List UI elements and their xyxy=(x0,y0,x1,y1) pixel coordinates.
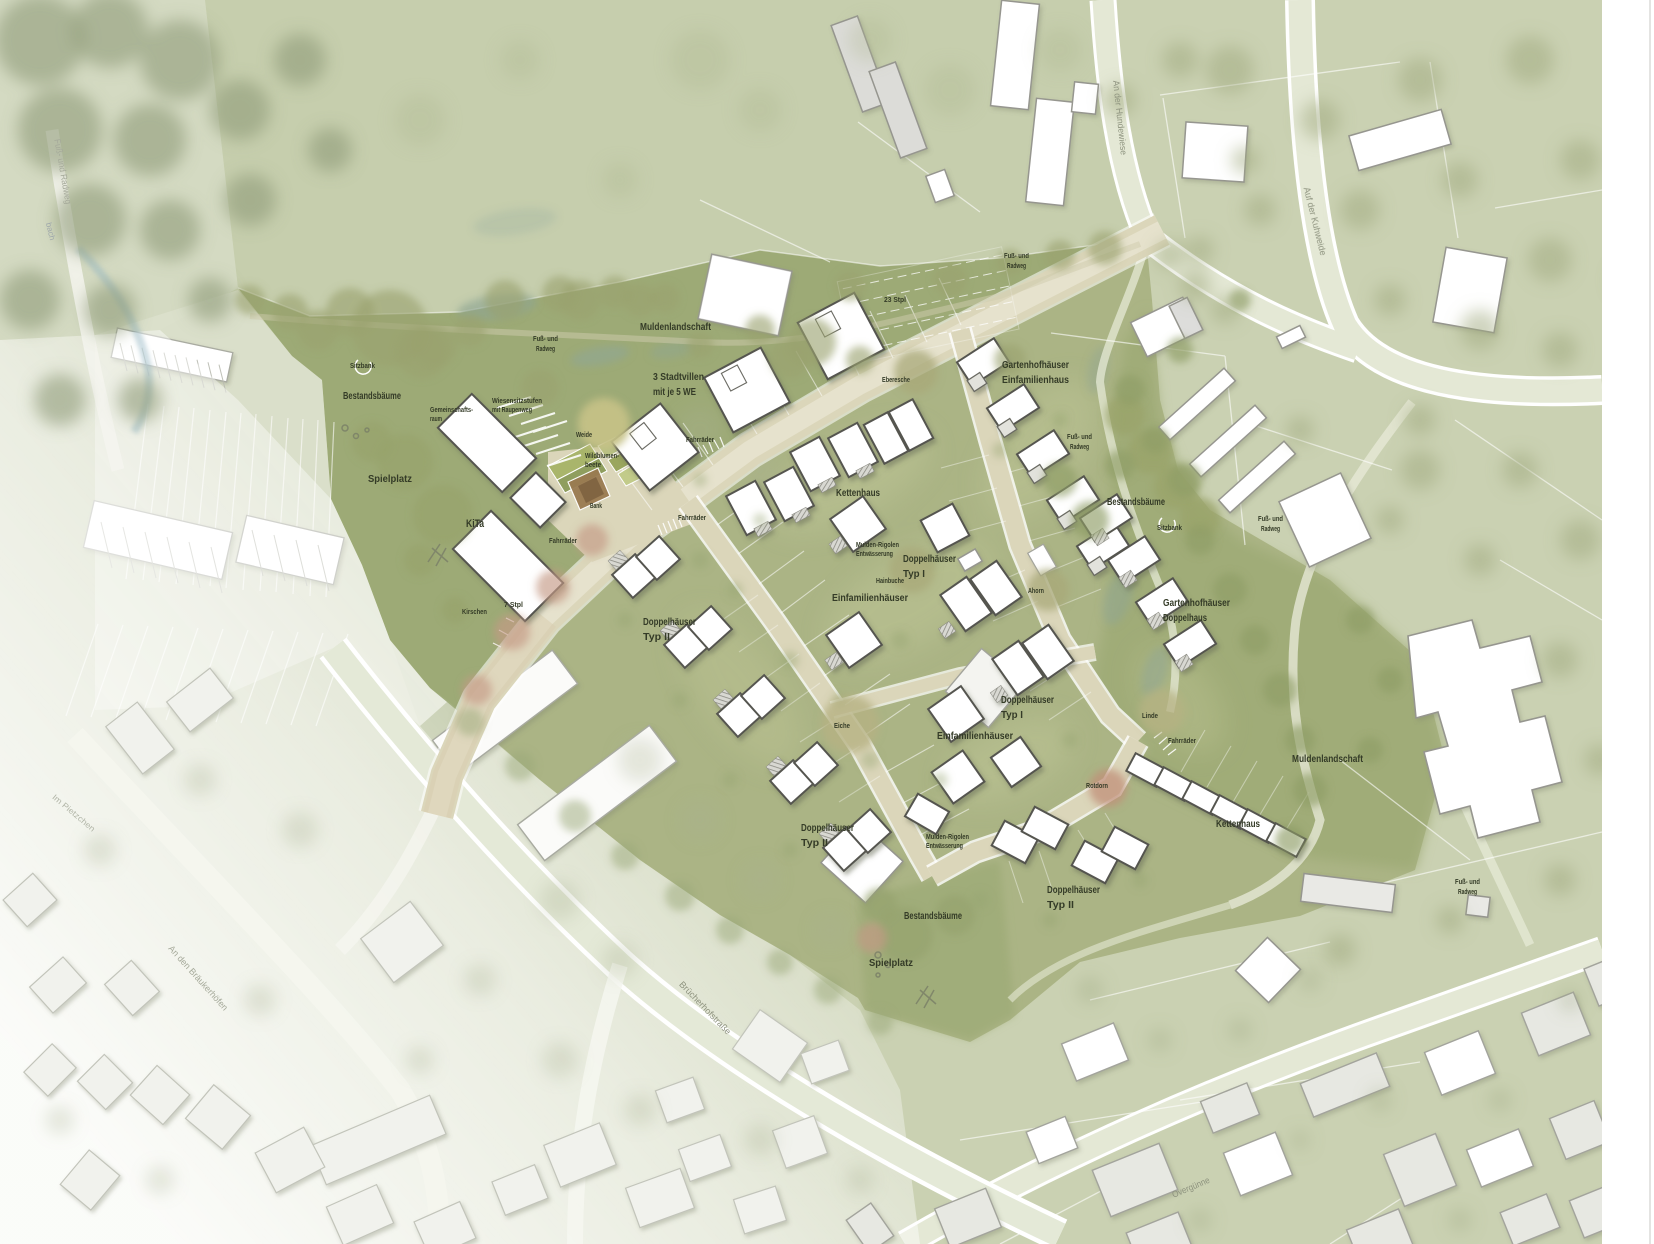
svg-text:Fahrräder: Fahrräder xyxy=(686,437,714,444)
svg-text:Einfamilienhaus: Einfamilienhaus xyxy=(1002,375,1069,386)
svg-text:Fuß- und: Fuß- und xyxy=(1258,516,1283,523)
svg-text:Radweg: Radweg xyxy=(1007,263,1026,270)
svg-text:Typ I: Typ I xyxy=(1001,710,1023,721)
svg-text:Gartenhofhäuser: Gartenhofhäuser xyxy=(1163,598,1230,609)
svg-text:Typ I: Typ I xyxy=(903,569,925,580)
svg-text:Fuß- und: Fuß- und xyxy=(533,336,558,343)
svg-text:Einfamilienhäuser: Einfamilienhäuser xyxy=(832,593,908,604)
svg-text:Rotdorn: Rotdorn xyxy=(1086,783,1108,790)
svg-text:Kettenhaus: Kettenhaus xyxy=(836,488,880,499)
svg-text:Radweg: Radweg xyxy=(1458,889,1477,896)
svg-text:Ahorn: Ahorn xyxy=(1028,588,1044,595)
svg-text:Bestandsbäume: Bestandsbäume xyxy=(343,391,401,402)
svg-text:3 Stadtvillen: 3 Stadtvillen xyxy=(653,371,704,383)
svg-text:raum: raum xyxy=(430,416,442,423)
svg-text:Weide: Weide xyxy=(576,432,592,439)
svg-text:Typ II: Typ II xyxy=(643,632,670,643)
svg-text:Einfamilienhäuser: Einfamilienhäuser xyxy=(937,731,1013,742)
svg-text:Mulden-Rigolen: Mulden-Rigolen xyxy=(856,542,899,549)
svg-text:Kettenhaus: Kettenhaus xyxy=(1216,819,1260,830)
svg-text:Eiche: Eiche xyxy=(834,723,850,730)
svg-text:Fuß- und: Fuß- und xyxy=(1004,253,1029,260)
svg-text:Eberesche: Eberesche xyxy=(882,377,910,384)
svg-text:Spielplatz: Spielplatz xyxy=(368,474,412,485)
svg-text:Bank: Bank xyxy=(590,503,602,510)
svg-text:7 Stpl: 7 Stpl xyxy=(504,602,523,609)
svg-text:Fuß- und: Fuß- und xyxy=(1067,434,1092,441)
svg-text:Muldenlandschaft: Muldenlandschaft xyxy=(640,321,711,333)
svg-text:Muldenlandschaft: Muldenlandschaft xyxy=(1292,753,1363,765)
svg-text:KiTa: KiTa xyxy=(466,518,485,530)
svg-text:Hainbuche: Hainbuche xyxy=(876,578,904,585)
svg-text:Bestandsbäume: Bestandsbäume xyxy=(904,911,962,922)
svg-text:Doppelhaus: Doppelhaus xyxy=(1163,613,1207,624)
svg-text:Spielplatz: Spielplatz xyxy=(869,958,913,969)
svg-text:Kirschen: Kirschen xyxy=(462,609,487,616)
svg-text:Mulden-Rigolen: Mulden-Rigolen xyxy=(926,834,969,841)
svg-text:Fahrräder: Fahrräder xyxy=(678,515,706,522)
svg-text:Fahrräder: Fahrräder xyxy=(549,538,577,545)
svg-text:mit Raupenweg: mit Raupenweg xyxy=(492,407,532,414)
svg-text:Fahrräder: Fahrräder xyxy=(1168,738,1196,745)
svg-text:Doppelhäuser: Doppelhäuser xyxy=(1001,695,1054,706)
svg-text:Fuß- und: Fuß- und xyxy=(1455,879,1480,886)
svg-text:Radweg: Radweg xyxy=(536,346,555,353)
svg-text:23 Stpl: 23 Stpl xyxy=(884,297,906,304)
svg-text:Typ II: Typ II xyxy=(801,838,828,849)
svg-text:Sitzbank: Sitzbank xyxy=(1157,525,1182,532)
svg-text:beete: beete xyxy=(585,462,601,469)
svg-text:Bestandsbäume: Bestandsbäume xyxy=(1107,497,1165,508)
svg-text:Entwässerung: Entwässerung xyxy=(926,843,963,850)
svg-text:Doppelhäuser: Doppelhäuser xyxy=(1047,885,1100,896)
svg-text:Doppelhäuser: Doppelhäuser xyxy=(643,617,696,628)
svg-text:mit je 5 WE: mit je 5 WE xyxy=(653,386,696,398)
svg-text:Linde: Linde xyxy=(1142,713,1158,720)
svg-text:Radweg: Radweg xyxy=(1070,444,1089,451)
svg-text:Gemeinschafts-: Gemeinschafts- xyxy=(430,407,474,414)
svg-text:Radweg: Radweg xyxy=(1261,526,1280,533)
svg-text:Sitzbank: Sitzbank xyxy=(350,363,375,370)
svg-text:Doppelhäuser: Doppelhäuser xyxy=(801,823,854,834)
svg-text:Wiesensitzstufen: Wiesensitzstufen xyxy=(492,398,542,405)
svg-text:Wildblumen-: Wildblumen- xyxy=(585,453,620,460)
svg-text:Doppelhäuser: Doppelhäuser xyxy=(903,554,956,565)
svg-text:Gartenhofhäuser: Gartenhofhäuser xyxy=(1002,360,1069,371)
svg-text:Typ II: Typ II xyxy=(1047,900,1074,911)
svg-text:Entwässerung: Entwässerung xyxy=(856,551,893,558)
